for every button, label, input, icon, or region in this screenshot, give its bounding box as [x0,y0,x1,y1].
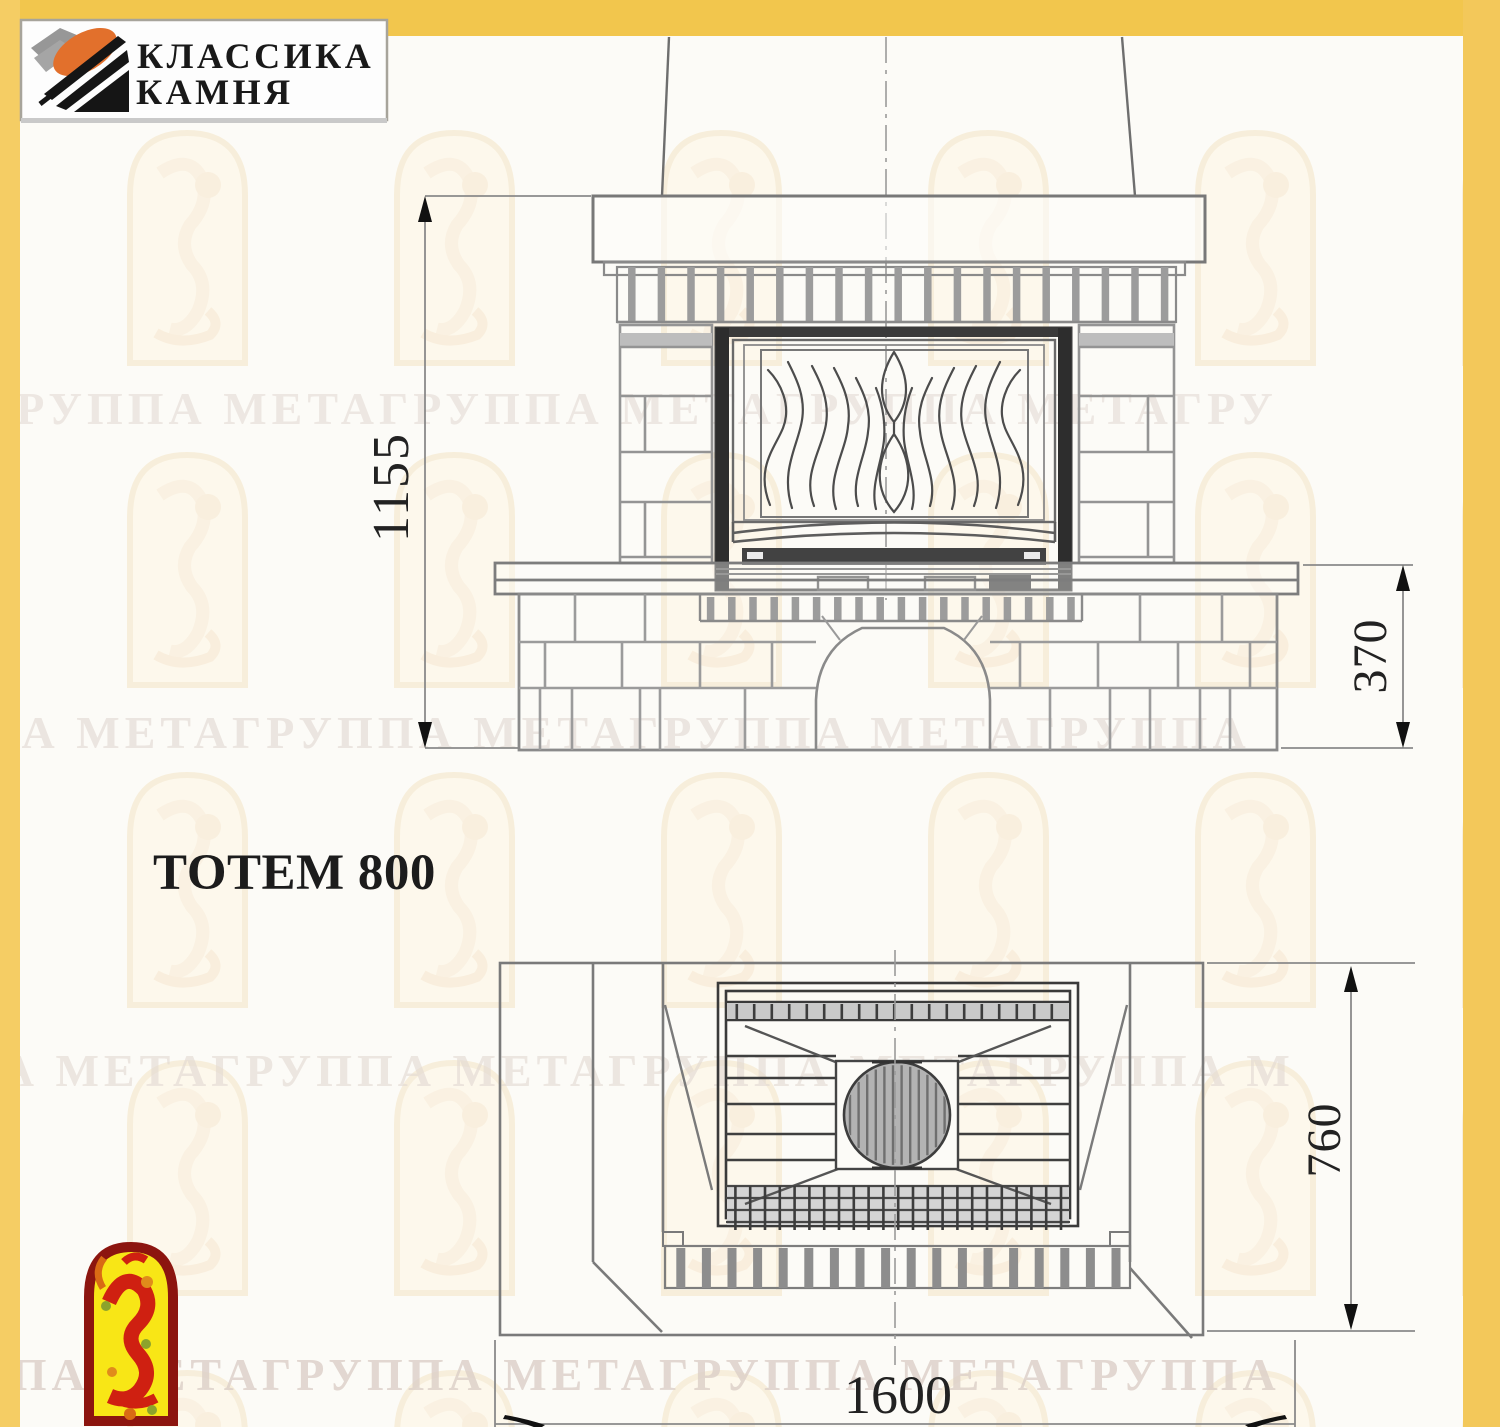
svg-text:1155: 1155 [363,432,420,542]
svg-text:ИПА МЕТАГРУППА МЕТАГРУППА МЕТА: ИПА МЕТАГРУППА МЕТАГРУППА МЕТАГРУППА [0,1349,1281,1400]
svg-text:ГРУППА МЕТАГРУППА МЕТАГРУППА М: ГРУППА МЕТАГРУППА МЕТАГРУППА МЕТАГРУ [0,383,1278,434]
svg-text:КЛАССИКА: КЛАССИКА [137,36,374,76]
svg-text:ТОТЕМ 800: ТОТЕМ 800 [153,845,436,901]
svg-text:760: 760 [1298,1103,1351,1178]
svg-text:ПА МЕТАГРУППА МЕТАГРУППА МЕТАГ: ПА МЕТАГРУППА МЕТАГРУППА МЕТАГРУППА М [0,1045,1295,1096]
svg-text:370: 370 [1344,619,1397,694]
svg-text:1600: 1600 [844,1365,952,1425]
svg-text:КАМНЯ: КАМНЯ [136,72,294,112]
